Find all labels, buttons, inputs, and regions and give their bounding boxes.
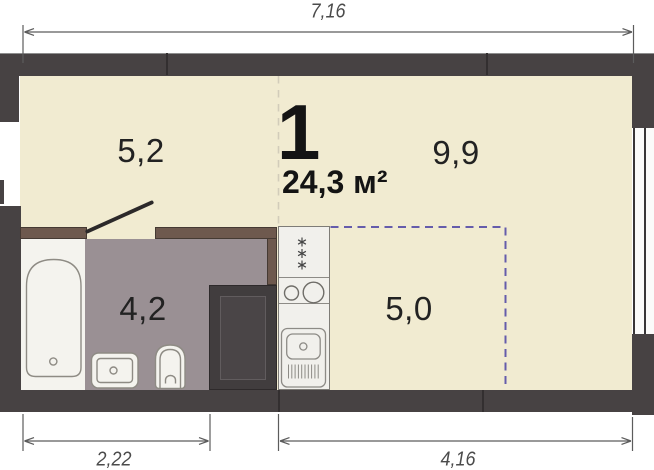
dimension-bottom-left [23,414,210,451]
dimension-bottom-right [279,414,633,451]
unit-total-area: 24,3 м² [282,166,388,198]
washbasin-outline-icon [92,353,139,388]
triple-snowflake-icon [298,238,306,270]
plan-geometry-overlay [0,0,654,470]
dimension-top [23,25,634,63]
toilet-outline-icon [156,345,186,389]
area-label-kitchen: 5,0 [385,290,432,328]
unit-number: 1 [277,93,320,171]
area-label-living: 9,9 [432,134,479,172]
bathtub-outline-icon [27,260,82,377]
door-swing-line-icon [87,203,151,232]
floor-plan: 1 24,3 м² 5,2 9,9 4,2 5,0 7,16 2,22 4,16 [0,0,654,470]
dimension-label-bottom-left: 2,22 [96,449,131,470]
two-burner-circles-icon [285,282,324,303]
dimension-label-bottom-right: 4,16 [440,449,475,470]
dimension-label-top: 7,16 [310,1,345,24]
area-label-hallway: 5,2 [117,132,164,170]
area-label-bathroom: 4,2 [119,290,166,328]
sink-with-drainboard-icon [282,329,326,388]
